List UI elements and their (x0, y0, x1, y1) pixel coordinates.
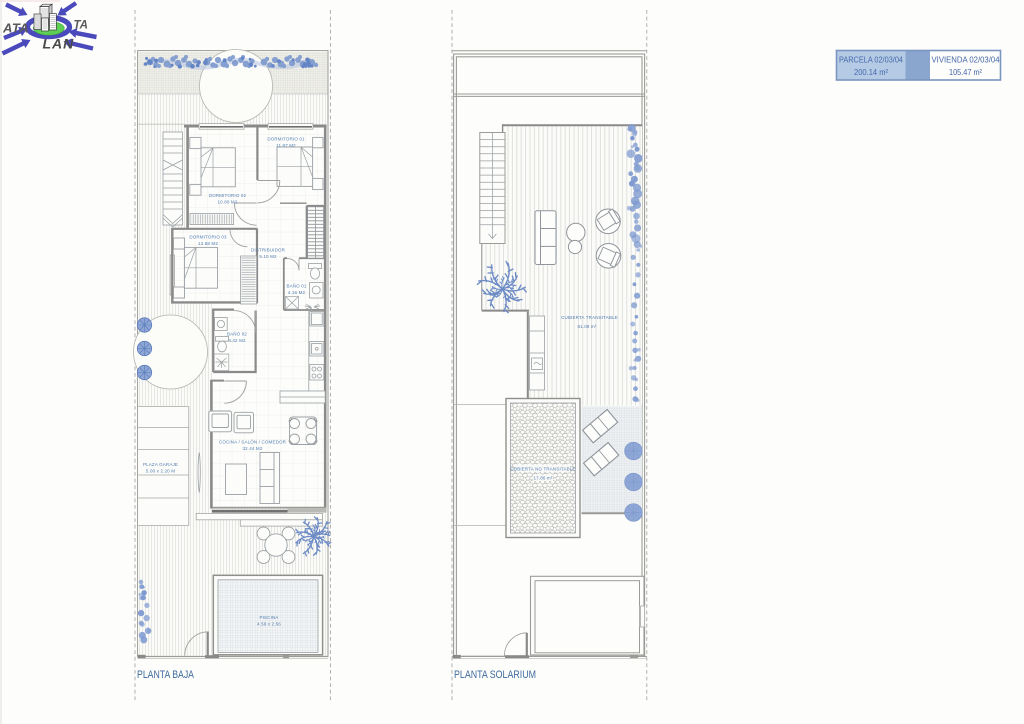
svg-text:PLAZA GARAJE: PLAZA GARAJE (143, 462, 178, 467)
svg-text:DORMITORIO 03: DORMITORIO 03 (189, 235, 227, 240)
svg-text:61.08 m²: 61.08 m² (578, 324, 597, 329)
svg-text:4.42 M2: 4.42 M2 (228, 338, 246, 343)
svg-text:BAÑO 01: BAÑO 01 (286, 283, 306, 289)
svg-text:ATA: ATA (2, 21, 29, 36)
svg-text:5.10 M2: 5.10 M2 (259, 254, 277, 259)
svg-text:5.00 x 2.20 M: 5.00 x 2.20 M (146, 469, 175, 474)
svg-text:17.86 m²: 17.86 m² (534, 476, 553, 481)
svg-text:TA: TA (74, 20, 88, 32)
svg-text:VIVIENDA 02/03/04: VIVIENDA 02/03/04 (932, 55, 1000, 65)
svg-text:DORMITORIO 01: DORMITORIO 01 (267, 137, 305, 142)
svg-text:DISTRIBUIDOR: DISTRIBUIDOR (251, 248, 286, 253)
svg-text:4.16 M2: 4.16 M2 (288, 290, 306, 295)
svg-text:LAN: LAN (43, 36, 75, 52)
svg-text:PLANTA BAJA: PLANTA BAJA (137, 669, 195, 681)
svg-text:13.88 M2: 13.88 M2 (198, 241, 218, 246)
svg-text:CUBIERTA NO TRANSITABLE: CUBIERTA NO TRANSITABLE (510, 467, 575, 472)
svg-text:105.47 m²: 105.47 m² (949, 67, 982, 77)
svg-text:10.80 M2: 10.80 M2 (218, 200, 238, 205)
svg-text:4.59 x 2.56: 4.59 x 2.56 (257, 622, 281, 627)
svg-text:32.44 M2: 32.44 M2 (243, 446, 263, 451)
svg-text:BAÑO 02: BAÑO 02 (227, 331, 247, 337)
svg-text:PISCINA: PISCINA (259, 615, 278, 620)
svg-text:PLANTA SOLARIUM: PLANTA SOLARIUM (454, 669, 536, 681)
svg-text:CUBIERTA TRANSITABLE: CUBIERTA TRANSITABLE (561, 315, 618, 320)
svg-text:PARCELA 02/03/04: PARCELA 02/03/04 (839, 55, 903, 65)
svg-text:COCINA / SALÓN / COMEDOR: COCINA / SALÓN / COMEDOR (219, 439, 287, 445)
svg-text:11.87 M2: 11.87 M2 (276, 143, 296, 148)
svg-text:DORMITORIO 02: DORMITORIO 02 (209, 193, 247, 198)
svg-text:200.14 m²: 200.14 m² (854, 67, 888, 77)
